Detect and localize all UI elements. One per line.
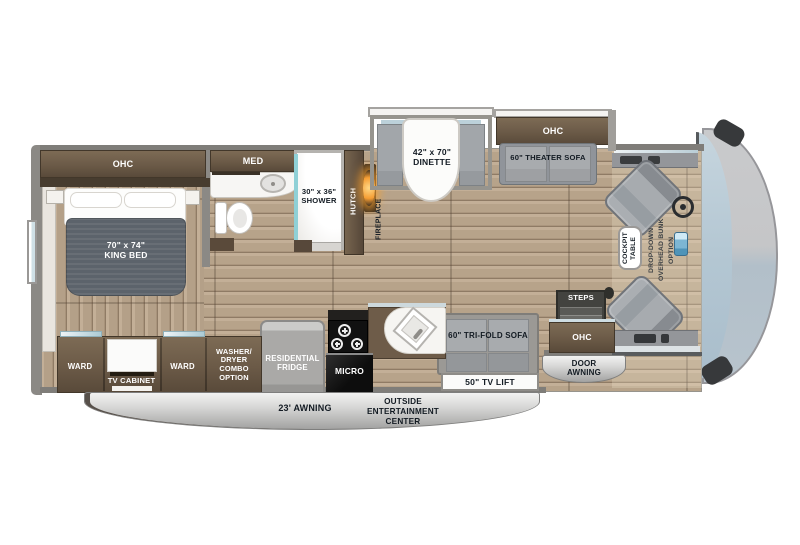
burner-icon xyxy=(338,324,351,337)
nightstand-left xyxy=(46,190,64,204)
cabinet-divider xyxy=(160,338,162,391)
shower-corner-cabinet xyxy=(294,240,312,252)
toilet-base-ledge xyxy=(210,238,234,251)
tv-lift xyxy=(441,373,539,391)
entry-ohc-cabinet xyxy=(549,322,615,353)
cabinet-divider xyxy=(205,338,207,391)
dash-bottom-vent2 xyxy=(661,334,669,343)
tv-cabinet-kick xyxy=(112,386,152,391)
cabinet-divider xyxy=(103,338,105,391)
hutch-cabinet xyxy=(344,150,364,255)
theater-sofa-cushion-left xyxy=(505,146,547,182)
burner-icon xyxy=(331,338,343,350)
steering-hub xyxy=(680,204,686,210)
ward-right-counter xyxy=(163,331,205,337)
trifold-seat-right xyxy=(488,353,529,372)
step-tread-1 xyxy=(560,307,602,315)
cockpit-table xyxy=(618,226,642,270)
pillow-right xyxy=(124,192,176,208)
ward-left-counter xyxy=(60,331,102,337)
bath-backsplash xyxy=(212,172,260,175)
med-cabinet xyxy=(210,150,296,172)
tv-screen xyxy=(107,339,157,372)
king-bed-mattress xyxy=(66,218,186,296)
main-awning-banner xyxy=(84,392,540,430)
dinette-bench-right xyxy=(459,124,485,186)
shower-enclosure xyxy=(294,150,344,250)
shower-glass xyxy=(294,154,298,246)
residential-fridge xyxy=(260,320,325,395)
microwave xyxy=(326,353,373,392)
bath-sink-drain xyxy=(271,182,275,186)
rear-window xyxy=(27,220,37,284)
burner-icon xyxy=(351,338,363,350)
trifold-back-right xyxy=(488,319,529,352)
grab-handle xyxy=(604,287,614,299)
bedroom-ohc-cabinet xyxy=(40,150,206,178)
dinette-table xyxy=(402,118,460,202)
tv-screen-base xyxy=(110,372,154,376)
trifold-seat-left xyxy=(446,353,487,372)
slide-end-cap xyxy=(608,110,616,151)
rv-floorplan: OHC 70" x 74" KING BED MED 30" x 36" SHO… xyxy=(0,0,800,545)
dinette-bench-left xyxy=(377,124,403,186)
pillow-left xyxy=(70,192,122,208)
cooktop-backsplash xyxy=(328,310,368,320)
trifold-back-left xyxy=(446,319,487,352)
living-ohc-cabinet xyxy=(496,117,610,145)
dash-bottom-vent xyxy=(634,334,656,343)
center-console xyxy=(674,232,688,256)
theater-sofa-cushion-right xyxy=(549,146,591,182)
bedroom-ledge xyxy=(40,178,216,187)
toilet-bowl-inner xyxy=(233,209,247,228)
